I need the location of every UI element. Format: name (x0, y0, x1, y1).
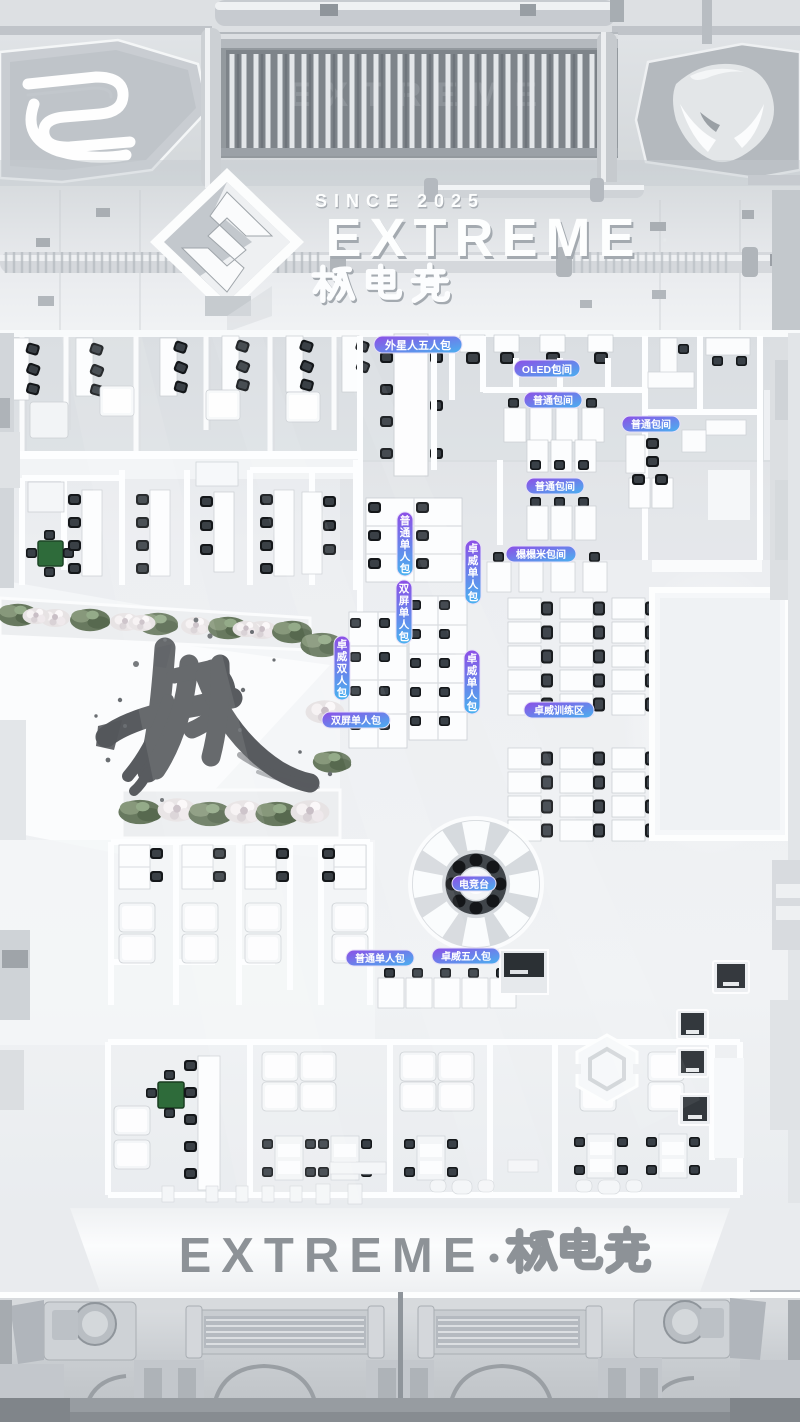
svg-text:榻榻米包间: 榻榻米包间 (516, 548, 566, 561)
svg-text:普通包间: 普通包间 (631, 418, 671, 431)
svg-text:普通单人包: 普通单人包 (400, 514, 411, 575)
svg-text:卓威五人包: 卓威五人包 (441, 950, 491, 963)
svg-text:电竞台: 电竞台 (459, 878, 489, 891)
svg-text:卓威单人包: 卓威单人包 (467, 652, 478, 713)
svg-text:普通包间: 普通包间 (533, 394, 573, 407)
svg-text:卓威单人包: 卓威单人包 (468, 542, 479, 603)
svg-text:双屏单人包: 双屏单人包 (331, 714, 381, 727)
svg-text:·: · (662, 230, 669, 252)
svg-text:卓威双人包: 卓威双人包 (336, 638, 348, 699)
svg-text:卓威训练区: 卓威训练区 (534, 704, 584, 717)
svg-text:外星人五人包: 外星人五人包 (384, 338, 451, 352)
svg-text:EXTREME: EXTREME (179, 1229, 486, 1283)
svg-text:EXTREME: EXTREME (325, 208, 642, 268)
svg-text:普通单人包: 普通单人包 (355, 952, 405, 965)
svg-text:普通包间: 普通包间 (535, 480, 575, 493)
svg-text:双屏单人包: 双屏单人包 (398, 583, 410, 643)
svg-text:OLED包间: OLED包间 (522, 363, 572, 376)
